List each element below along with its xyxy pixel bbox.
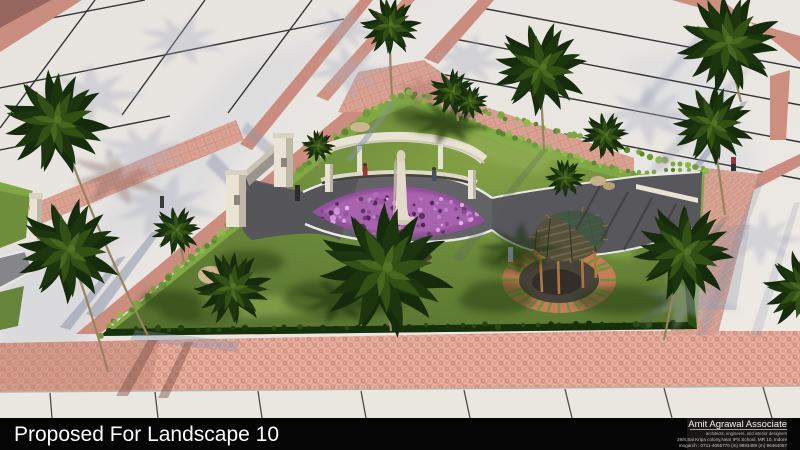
svg-text:39/8,Sai Kripa colony,Near IPS: 39/8,Sai Kripa colony,Near IPS School, M… <box>677 437 787 442</box>
svg-text:mogarch : 0711-4055770 (m) 989: mogarch : 0711-4055770 (m) 9893489 (m) 9… <box>679 443 788 448</box>
svg-text:Amit Agrawal Associate: Amit Agrawal Associate <box>688 419 787 430</box>
svg-text:architects, engineers, and int: architects, engineers, and interior desi… <box>706 431 787 436</box>
svg-text:Proposed For Landscape 10: Proposed For Landscape 10 <box>14 423 279 446</box>
